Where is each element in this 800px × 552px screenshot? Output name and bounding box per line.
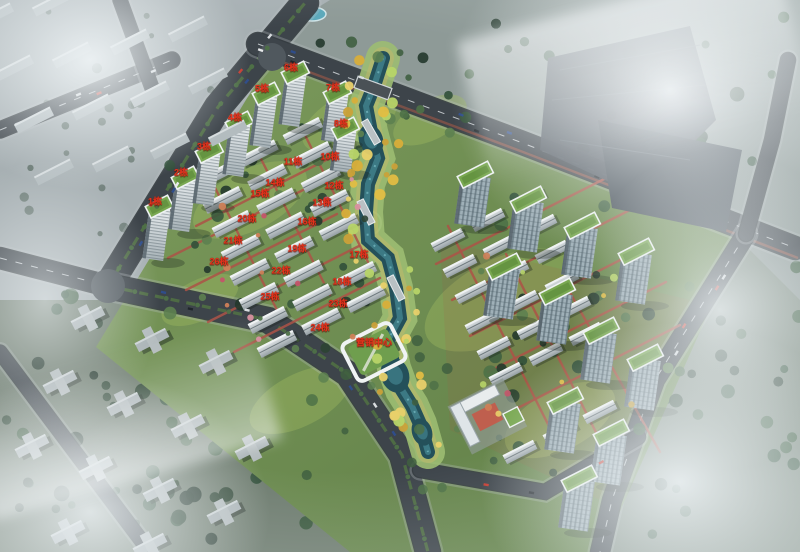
rendered-scene	[0, 0, 800, 552]
aerial-rendering: 1栋2栋3栋4栋5栋6栋7栋8栋10栋11栋12栋13栋14栋15栋16栋17栋…	[0, 0, 800, 552]
